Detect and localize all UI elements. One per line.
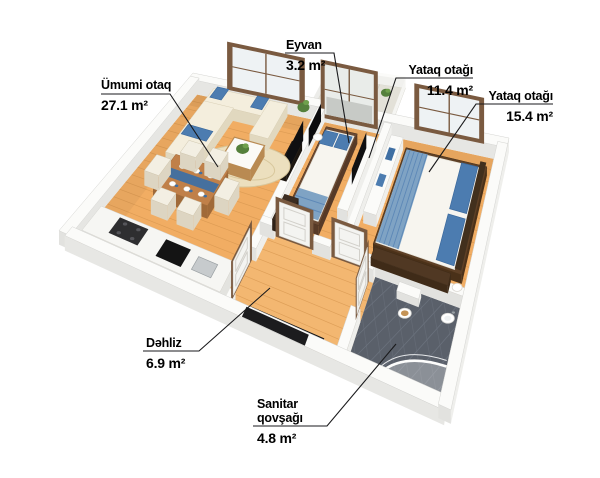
room-label-bathroom: Sanitar qovşağı 4.8 m² xyxy=(257,397,321,446)
ellipse xyxy=(130,237,134,240)
line xyxy=(520,330,549,458)
line xyxy=(570,349,600,478)
nightstand xyxy=(313,134,322,141)
room-name: Dəhliz xyxy=(146,336,185,350)
line xyxy=(507,325,535,451)
line xyxy=(482,339,545,428)
toilet-seat xyxy=(401,310,409,316)
plate xyxy=(184,187,190,192)
room-area: 6.9 m² xyxy=(146,356,185,371)
line xyxy=(558,344,590,476)
line xyxy=(523,353,583,446)
ellipse xyxy=(303,100,309,105)
ellipse xyxy=(123,222,127,225)
room-label-living-room: Ümumi otaq 27.1 m² xyxy=(101,78,171,113)
room-label-balcony: Eyvan 3.2 m² xyxy=(286,38,325,73)
napkin xyxy=(175,184,179,187)
room-name: Ümumi otaq xyxy=(101,78,171,92)
line xyxy=(545,339,576,470)
ellipse xyxy=(243,143,249,148)
room-name: Eyvan xyxy=(286,38,325,52)
line xyxy=(469,311,494,433)
plate xyxy=(169,181,175,186)
room-area: 11.4 m² xyxy=(383,83,473,98)
line xyxy=(583,353,600,478)
room-area: 27.1 m² xyxy=(101,98,171,113)
faucet xyxy=(452,311,455,313)
sink-basin xyxy=(444,316,451,321)
room-name: Yataq otağı xyxy=(383,63,473,77)
line xyxy=(482,316,508,439)
ellipse xyxy=(136,228,140,231)
room-area: 3.2 m² xyxy=(286,58,325,73)
floor-plan-page: Ümumi otaq 27.1 m² Eyvan 3.2 m² Yataq ot… xyxy=(0,0,600,478)
room-label-bedroom-1: Yataq otağı 11.4 m² xyxy=(383,63,473,98)
round-table xyxy=(452,283,462,291)
ellipse xyxy=(117,231,121,234)
napkin xyxy=(199,172,203,175)
napkin xyxy=(203,195,207,198)
line xyxy=(496,344,558,434)
line xyxy=(532,335,562,464)
room-label-hallway: Dəhliz 6.9 m² xyxy=(146,336,185,371)
room-area: 4.8 m² xyxy=(257,431,321,446)
line xyxy=(494,321,521,446)
napkin xyxy=(189,190,193,193)
plate xyxy=(198,192,204,197)
room-area: 15.4 m² xyxy=(463,109,553,124)
line xyxy=(468,335,532,422)
line xyxy=(509,349,570,441)
room-name: Sanitar qovşağı xyxy=(257,397,321,425)
room-name: Yataq otağı xyxy=(463,89,553,103)
room-label-bedroom-2: Yataq otağı 15.4 m² xyxy=(463,89,553,124)
